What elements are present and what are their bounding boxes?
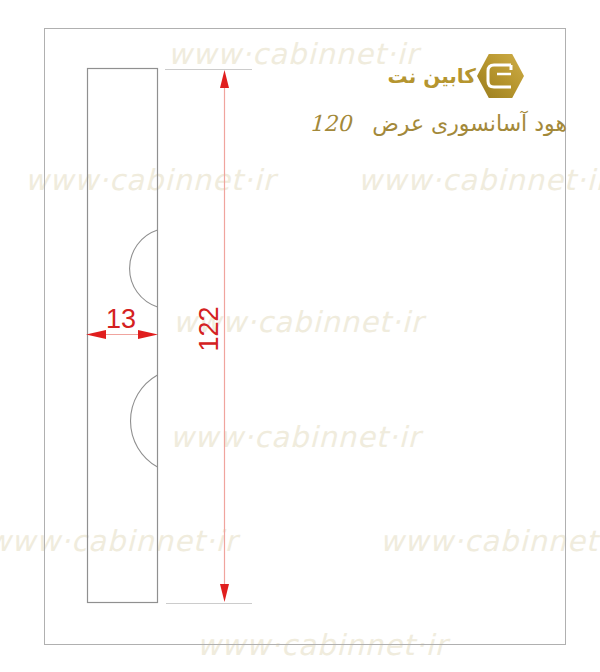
height-dimension-arrow-down-icon	[220, 584, 229, 602]
diagram-canvas: www·cabinnet·ir www·cabinnet·ir www·cabi…	[0, 0, 600, 672]
hood-technical-drawing	[0, 0, 600, 672]
height-dimension-arrow-up-icon	[220, 70, 229, 88]
vent-arc-top	[130, 230, 158, 307]
width-dimension-label: 13	[97, 306, 145, 333]
vent-arc-bottom	[131, 375, 158, 467]
height-dimension-label: 122	[196, 289, 224, 369]
